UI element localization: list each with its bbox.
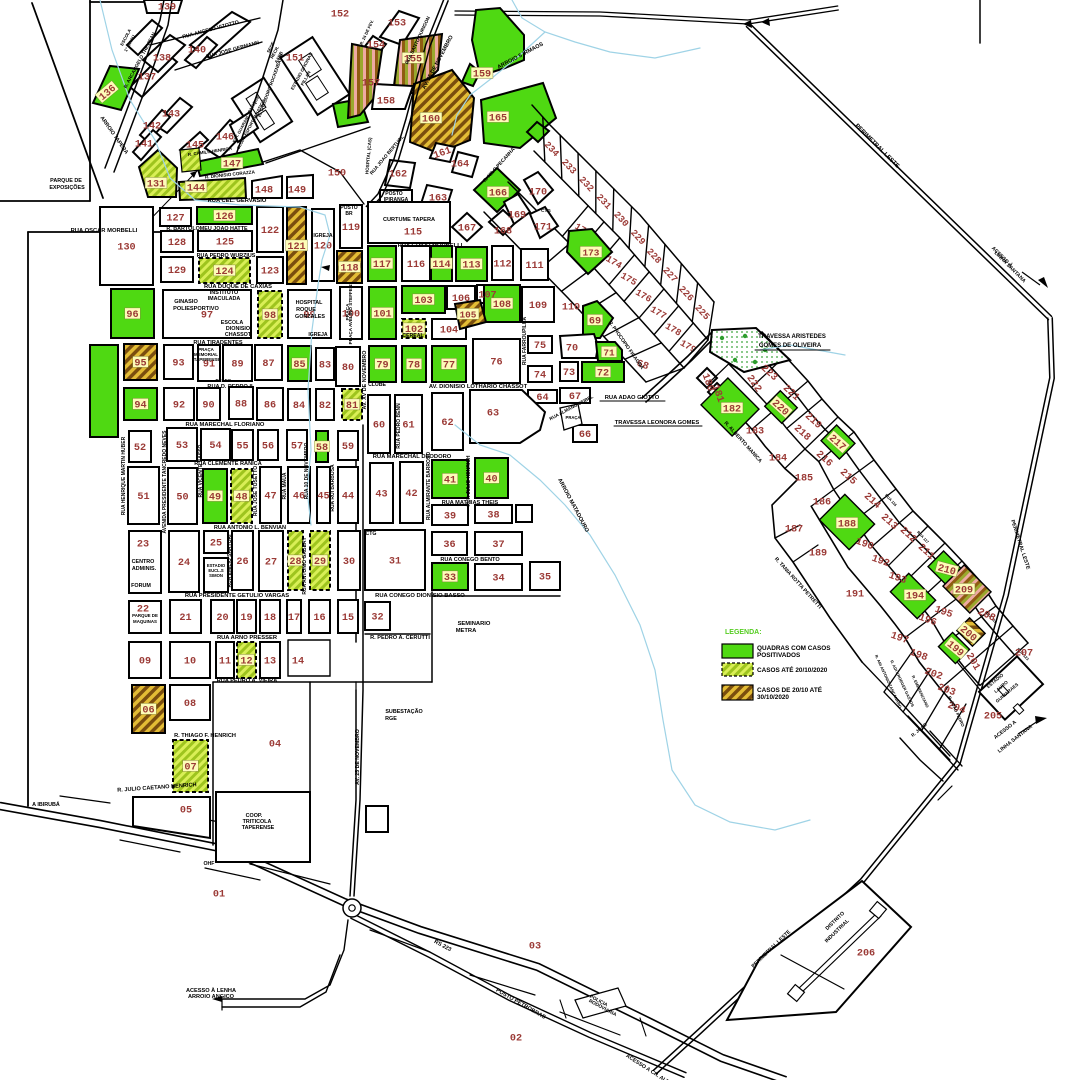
svg-text:32: 32 [371, 613, 383, 624]
svg-text:72: 72 [597, 369, 609, 380]
svg-text:GINASIO: GINASIO [174, 299, 198, 305]
svg-text:143: 143 [162, 110, 180, 121]
svg-text:RUA GUIDO MORBELLI: RUA GUIDO MORBELLI [398, 243, 463, 249]
svg-text:58: 58 [316, 443, 328, 454]
svg-text:RUA ANTONIO GABERT: RUA ANTONIO GABERT [302, 537, 308, 594]
svg-text:169: 169 [508, 211, 526, 222]
svg-text:53: 53 [176, 441, 188, 452]
svg-text:184: 184 [769, 454, 787, 465]
svg-text:03: 03 [529, 942, 541, 953]
svg-text:186: 186 [813, 498, 831, 509]
svg-text:10: 10 [184, 657, 196, 668]
svg-text:AV. XV DE NOVEMBRO: AV. XV DE NOVEMBRO [362, 350, 368, 409]
svg-text:TAPERENSE: TAPERENSE [194, 357, 221, 362]
svg-text:81: 81 [346, 401, 358, 412]
svg-text:R. PEDRO A. CERUTTI: R. PEDRO A. CERUTTI [370, 635, 430, 641]
svg-text:RUA ADAO GIOTTO: RUA ADAO GIOTTO [605, 395, 660, 401]
svg-text:TRAVESSA LEONORA GOMES: TRAVESSA LEONORA GOMES [615, 420, 700, 426]
svg-text:41: 41 [444, 476, 456, 487]
svg-text:RUA ARNO PRESSER: RUA ARNO PRESSER [217, 635, 278, 641]
svg-text:139: 139 [158, 3, 176, 14]
svg-text:69: 69 [589, 317, 601, 328]
svg-text:96: 96 [126, 310, 138, 321]
svg-text:78: 78 [408, 361, 420, 372]
svg-text:163: 163 [429, 194, 447, 205]
svg-text:30/10/2020: 30/10/2020 [757, 694, 789, 701]
svg-text:57: 57 [291, 442, 303, 453]
svg-text:76: 76 [490, 358, 502, 369]
svg-text:RUA PEDRO WURZIUS: RUA PEDRO WURZIUS [197, 253, 256, 259]
svg-text:75: 75 [534, 341, 546, 352]
svg-text:77: 77 [443, 361, 455, 372]
svg-text:140: 140 [188, 46, 206, 57]
svg-text:17: 17 [288, 613, 300, 624]
svg-text:93: 93 [172, 359, 184, 370]
svg-text:94: 94 [134, 401, 146, 412]
svg-text:129: 129 [168, 266, 186, 277]
svg-text:CLUBE: CLUBE [368, 382, 386, 388]
svg-text:SIMON: SIMON [209, 573, 223, 578]
svg-text:66: 66 [579, 430, 591, 441]
svg-text:CTG: CTG [366, 531, 377, 537]
svg-text:02: 02 [510, 1034, 522, 1045]
svg-text:PRAÇA AVELINO STEFFENS: PRAÇA AVELINO STEFFENS [348, 282, 353, 345]
svg-text:114: 114 [432, 260, 450, 271]
svg-text:205: 205 [984, 712, 1002, 723]
svg-text:21: 21 [179, 613, 191, 624]
svg-text:IMACULADA: IMACULADA [208, 296, 241, 302]
svg-text:PARQUE DE: PARQUE DE [132, 613, 158, 618]
svg-text:51: 51 [137, 492, 149, 503]
svg-text:QUADRAS COM CASOS: QUADRAS COM CASOS [757, 645, 831, 652]
svg-text:112: 112 [493, 260, 511, 271]
svg-text:LEGENDA:: LEGENDA: [725, 629, 762, 636]
svg-text:87: 87 [262, 359, 274, 370]
svg-text:ROQUE: ROQUE [296, 307, 316, 313]
svg-text:HOSPITAL: HOSPITAL [296, 300, 324, 306]
svg-text:IGREJA: IGREJA [308, 332, 328, 338]
svg-text:36: 36 [443, 540, 455, 551]
svg-text:168: 168 [494, 227, 512, 238]
svg-text:BR: BR [345, 211, 353, 217]
svg-text:RUA OSCAR MORBELLI: RUA OSCAR MORBELLI [71, 228, 138, 234]
svg-text:120: 120 [314, 242, 332, 253]
svg-text:A IBIRUBÁ: A IBIRUBÁ [32, 801, 60, 808]
svg-text:13: 13 [264, 657, 276, 668]
svg-text:70: 70 [566, 344, 578, 355]
svg-text:RUA CONEGO DIONISIO BASSO: RUA CONEGO DIONISIO BASSO [375, 593, 465, 599]
svg-text:25: 25 [210, 539, 222, 550]
svg-text:FORUM: FORUM [131, 583, 151, 589]
svg-text:SEMINARIO: SEMINARIO [458, 621, 491, 627]
svg-text:74: 74 [534, 371, 546, 382]
svg-text:05: 05 [180, 806, 192, 817]
svg-text:RUA CONEGO BENTO: RUA CONEGO BENTO [440, 557, 500, 563]
svg-text:R. THIAGO F. HENRICH: R. THIAGO F. HENRICH [174, 733, 236, 739]
svg-text:AV. 25 DE NOVEMBRO: AV. 25 DE NOVEMBRO [355, 729, 361, 785]
svg-text:RUA EMILIO SARTORI: RUA EMILIO SARTORI [227, 534, 233, 588]
svg-text:118: 118 [340, 264, 358, 275]
svg-text:RUA HENRIQUE MARTIN HUBER: RUA HENRIQUE MARTIN HUBER [121, 436, 127, 515]
svg-text:54: 54 [209, 441, 221, 452]
svg-text:183: 183 [746, 427, 764, 438]
svg-text:CURTUME TAPERA: CURTUME TAPERA [383, 217, 435, 223]
svg-text:113: 113 [462, 261, 480, 272]
svg-text:POLIESPORTIVO: POLIESPORTIVO [173, 306, 219, 312]
svg-text:182: 182 [723, 405, 741, 416]
svg-text:24: 24 [178, 558, 190, 569]
svg-text:OHF: OHF [204, 861, 215, 867]
svg-text:CEREAL: CEREAL [402, 333, 424, 339]
svg-text:97: 97 [201, 311, 213, 322]
svg-text:35: 35 [539, 573, 551, 584]
svg-text:CASOS ATÉ 20/10/2020: CASOS ATÉ 20/10/2020 [757, 665, 828, 674]
svg-text:164: 164 [451, 160, 469, 171]
svg-text:METRA: METRA [456, 628, 477, 634]
svg-text:61: 61 [402, 421, 414, 432]
svg-text:110: 110 [562, 303, 580, 314]
svg-text:TAPERENSE: TAPERENSE [242, 825, 275, 831]
svg-text:40: 40 [485, 475, 497, 486]
svg-text:50: 50 [176, 493, 188, 504]
svg-text:RUA CEL. GERVASIO: RUA CEL. GERVASIO [208, 198, 267, 204]
svg-text:108: 108 [493, 300, 511, 311]
svg-text:83: 83 [319, 361, 331, 372]
svg-text:31: 31 [389, 557, 401, 568]
svg-text:89: 89 [231, 360, 243, 371]
svg-text:MAQUINAS: MAQUINAS [133, 619, 157, 624]
svg-text:137: 137 [138, 73, 156, 84]
svg-text:171: 171 [534, 223, 552, 234]
svg-text:127: 127 [166, 214, 184, 225]
svg-text:151: 151 [286, 54, 304, 65]
svg-text:104: 104 [440, 326, 458, 337]
svg-text:11: 11 [219, 657, 231, 668]
svg-text:63: 63 [487, 409, 499, 420]
svg-text:59: 59 [342, 442, 354, 453]
svg-text:26: 26 [236, 557, 248, 568]
svg-text:173: 173 [583, 248, 600, 259]
svg-text:43: 43 [375, 490, 387, 501]
svg-text:152: 152 [331, 10, 349, 21]
svg-text:RUA 10 DE NOVEMBRO: RUA 10 DE NOVEMBRO [304, 443, 310, 500]
svg-text:52: 52 [134, 443, 146, 454]
svg-text:128: 128 [168, 238, 186, 249]
svg-text:04: 04 [269, 740, 281, 751]
svg-text:92: 92 [173, 401, 185, 412]
svg-text:18: 18 [264, 613, 276, 624]
svg-text:PARQUE DE: PARQUE DE [50, 178, 82, 184]
svg-text:RUA FARROUPILHA: RUA FARROUPILHA [522, 317, 528, 366]
svg-text:08: 08 [184, 699, 196, 710]
svg-text:189: 189 [809, 549, 827, 560]
svg-text:RUA JULIO HENRICH: RUA JULIO HENRICH [466, 455, 472, 506]
svg-text:33: 33 [444, 573, 456, 584]
svg-text:37: 37 [492, 540, 504, 551]
svg-text:42: 42 [405, 489, 417, 500]
svg-text:RUA ALMIRANTE BARROSO: RUA ALMIRANTE BARROSO [426, 452, 432, 520]
svg-text:01: 01 [213, 890, 225, 901]
svg-text:44: 44 [342, 492, 354, 503]
svg-text:GOMES DE OLIVEIRA: GOMES DE OLIVEIRA [759, 343, 822, 349]
svg-text:150: 150 [328, 169, 346, 180]
svg-text:158: 158 [377, 97, 395, 108]
svg-text:105: 105 [460, 310, 477, 321]
svg-text:POSITIVADOS: POSITIVADOS [757, 652, 801, 659]
svg-text:29: 29 [314, 557, 326, 568]
svg-text:RUA MAUA: RUA MAUA [282, 472, 288, 499]
svg-text:60: 60 [373, 421, 385, 432]
svg-text:206: 206 [857, 949, 875, 960]
svg-text:185: 185 [795, 474, 813, 485]
svg-text:209: 209 [955, 586, 973, 597]
svg-text:154: 154 [367, 41, 385, 52]
svg-text:123: 123 [261, 267, 279, 278]
svg-text:73: 73 [563, 368, 575, 379]
svg-text:147: 147 [223, 160, 241, 171]
svg-text:30: 30 [343, 557, 355, 568]
svg-text:62: 62 [441, 418, 453, 429]
svg-text:RUA MARECHAL DEODORO: RUA MARECHAL DEODORO [373, 454, 452, 460]
svg-text:122: 122 [261, 226, 279, 237]
svg-text:39: 39 [444, 512, 456, 523]
svg-text:117: 117 [373, 260, 391, 271]
svg-text:CTG: CTG [541, 208, 551, 213]
svg-text:RUA CLEMENTE RANICA: RUA CLEMENTE RANICA [194, 461, 262, 467]
svg-text:90: 90 [202, 401, 214, 412]
svg-text:144: 144 [187, 184, 205, 195]
svg-text:207: 207 [1015, 649, 1033, 660]
svg-text:109: 109 [529, 301, 547, 312]
svg-text:14: 14 [292, 657, 304, 668]
svg-text:16: 16 [313, 613, 325, 624]
svg-text:TRAVESSA ARISTEDES: TRAVESSA ARISTEDES [758, 334, 826, 340]
svg-text:RUA RUI BARBOSA: RUA RUI BARBOSA [330, 464, 336, 512]
svg-text:191: 191 [846, 590, 864, 601]
svg-text:55: 55 [236, 442, 248, 453]
svg-text:06: 06 [142, 706, 154, 717]
svg-text:38: 38 [487, 511, 499, 522]
svg-text:86: 86 [264, 401, 276, 412]
svg-text:PRAÇA: PRAÇA [566, 415, 581, 420]
svg-text:RUA ANTONIO L. BENVIAN: RUA ANTONIO L. BENVIAN [214, 525, 286, 531]
svg-text:85: 85 [293, 360, 305, 371]
svg-text:148: 148 [255, 186, 273, 197]
svg-text:27: 27 [265, 558, 277, 569]
svg-text:CHASSOT: CHASSOT [225, 332, 252, 338]
svg-text:ADMINIS.: ADMINIS. [132, 566, 157, 572]
svg-text:28: 28 [289, 557, 301, 568]
svg-text:103: 103 [414, 296, 432, 307]
svg-text:56: 56 [262, 442, 274, 453]
svg-text:84: 84 [293, 401, 305, 412]
svg-text:48: 48 [235, 493, 247, 504]
svg-text:187: 187 [785, 525, 803, 536]
svg-text:64: 64 [536, 393, 548, 404]
svg-text:79: 79 [376, 361, 388, 372]
svg-text:ARROIO ANGICO: ARROIO ANGICO [188, 994, 235, 1000]
svg-text:RUA PEDRO A. VIEIRA: RUA PEDRO A. VIEIRA [217, 678, 278, 684]
svg-text:111: 111 [525, 261, 543, 272]
svg-text:116: 116 [407, 260, 425, 271]
svg-text:CASOS DE 20/10 ATÉ: CASOS DE 20/10 ATÉ [757, 685, 823, 694]
svg-text:IPIRANGA: IPIRANGA [384, 197, 409, 203]
svg-text:EXPOSIÇÕES: EXPOSIÇÕES [49, 184, 85, 191]
svg-text:138: 138 [153, 54, 171, 65]
svg-text:126: 126 [215, 212, 233, 223]
svg-text:DELEG.: DELEG. [215, 378, 232, 383]
svg-text:130: 130 [117, 243, 135, 254]
svg-text:157: 157 [362, 79, 380, 90]
svg-text:RUA PEDRO BENN: RUA PEDRO BENN [396, 403, 402, 449]
svg-text:95: 95 [134, 359, 146, 370]
svg-text:CENTRO: CENTRO [132, 559, 155, 565]
svg-text:15: 15 [342, 613, 354, 624]
svg-text:R. BARTOLOMEU JOAO HATTE: R. BARTOLOMEU JOAO HATTE [166, 226, 248, 232]
svg-text:162: 162 [389, 170, 407, 181]
svg-text:71: 71 [603, 348, 615, 359]
svg-text:149: 149 [288, 186, 306, 197]
svg-text:RUA MARECHAL FLORIANO: RUA MARECHAL FLORIANO [186, 422, 265, 428]
svg-text:RUA D. PEDRO II: RUA D. PEDRO II [207, 384, 253, 390]
svg-text:125: 125 [216, 238, 234, 249]
svg-text:45: 45 [317, 492, 329, 503]
svg-text:34: 34 [492, 574, 504, 585]
svg-text:23: 23 [137, 540, 149, 551]
svg-text:19: 19 [240, 613, 252, 624]
svg-text:AVENIDA PRESIDENTE TANCREDO NE: AVENIDA PRESIDENTE TANCREDO NEVES [162, 430, 168, 534]
svg-text:160: 160 [422, 115, 440, 126]
svg-text:RUA JOSE TOSETTO: RUA JOSE TOSETTO [253, 466, 259, 516]
svg-text:RUA VICENTE BASSO: RUA VICENTE BASSO [198, 444, 204, 497]
svg-text:170: 170 [529, 188, 547, 199]
svg-text:47: 47 [264, 492, 276, 503]
svg-text:165: 165 [489, 114, 507, 125]
svg-text:20: 20 [216, 613, 228, 624]
svg-text:115: 115 [404, 228, 422, 239]
svg-text:131: 131 [147, 180, 165, 191]
svg-text:101: 101 [373, 310, 391, 321]
svg-text:98: 98 [264, 311, 276, 322]
svg-text:153: 153 [388, 19, 406, 30]
svg-text:09: 09 [139, 657, 151, 668]
svg-text:188: 188 [838, 520, 856, 531]
svg-text:82: 82 [319, 401, 331, 412]
svg-text:07: 07 [184, 763, 196, 774]
svg-text:119: 119 [342, 223, 360, 234]
svg-text:142: 142 [143, 122, 161, 133]
svg-text:SUBESTAÇÃO: SUBESTAÇÃO [385, 708, 422, 715]
svg-text:ACESSO À LENHA: ACESSO À LENHA [186, 987, 236, 994]
svg-text:RUA PRESIDENTE GETULIO VARGAS: RUA PRESIDENTE GETULIO VARGAS [185, 593, 289, 599]
svg-text:80: 80 [342, 363, 354, 374]
svg-text:124: 124 [215, 267, 233, 278]
svg-text:141: 141 [135, 140, 153, 151]
svg-text:12: 12 [240, 657, 252, 668]
svg-text:88: 88 [235, 400, 247, 411]
svg-text:194: 194 [906, 592, 924, 603]
svg-text:RUA TIRADENTES: RUA TIRADENTES [193, 340, 242, 346]
svg-text:RGE: RGE [385, 716, 397, 722]
svg-text:AV. DIONISIO LOTHARIO CHASSOT: AV. DIONISIO LOTHARIO CHASSOT [429, 384, 528, 390]
svg-text:166: 166 [489, 189, 507, 200]
svg-text:IGREJA: IGREJA [313, 233, 333, 239]
svg-text:167: 167 [458, 224, 476, 235]
svg-text:GONZALES: GONZALES [295, 314, 325, 320]
svg-text:49: 49 [209, 493, 221, 504]
svg-text:159: 159 [473, 70, 491, 81]
svg-text:121: 121 [287, 242, 305, 253]
